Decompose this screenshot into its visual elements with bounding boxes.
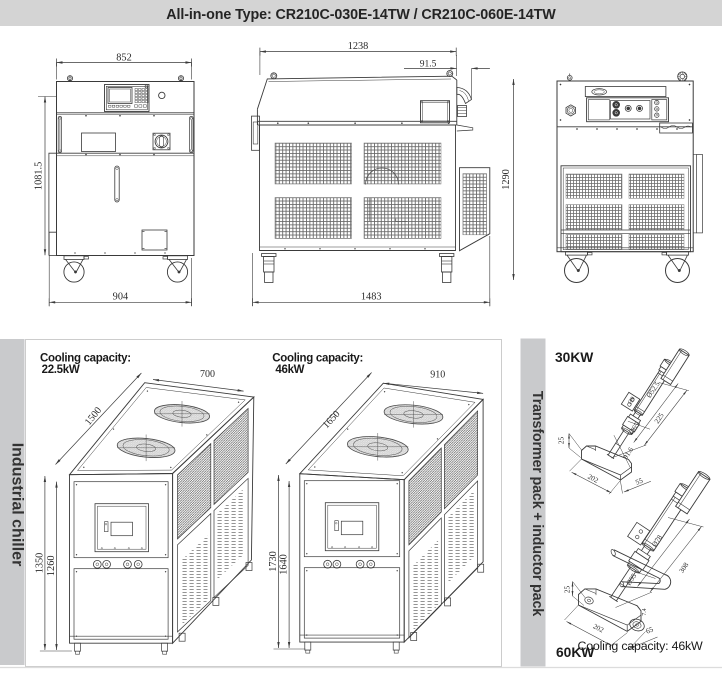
svg-text:Industrial chiller: Industrial chiller xyxy=(9,443,26,567)
svg-text:1081.5: 1081.5 xyxy=(34,162,45,190)
svg-text:22.5kW: 22.5kW xyxy=(42,364,80,376)
svg-text:25: 25 xyxy=(563,586,571,594)
svg-text:1290: 1290 xyxy=(501,169,512,190)
svg-text:Cooling capacity:: Cooling capacity: xyxy=(272,352,363,364)
svg-text:1730: 1730 xyxy=(268,551,279,572)
svg-text:1640: 1640 xyxy=(279,554,290,575)
svg-text:Cooling capacity:: Cooling capacity: xyxy=(40,352,131,364)
svg-text:904: 904 xyxy=(113,292,128,303)
svg-text:30KW: 30KW xyxy=(555,350,594,365)
svg-text:7.4: 7.4 xyxy=(642,608,648,615)
svg-text:91.5: 91.5 xyxy=(420,60,437,70)
svg-text:25: 25 xyxy=(558,437,566,445)
svg-text:All-in-one Type: CR210C-030E-1: All-in-one Type: CR210C-030E-14TW / CR21… xyxy=(166,7,556,23)
svg-text:852: 852 xyxy=(116,53,131,64)
svg-text:46kW: 46kW xyxy=(275,364,304,376)
svg-text:1350: 1350 xyxy=(34,553,45,574)
svg-text:Transformer pack + inductor pa: Transformer pack + inductor pack xyxy=(529,391,545,617)
svg-text:1238: 1238 xyxy=(348,41,369,52)
svg-text:910: 910 xyxy=(430,370,445,381)
svg-text:Cooling capacity: 46kW: Cooling capacity: 46kW xyxy=(577,639,703,653)
svg-text:700: 700 xyxy=(200,369,215,380)
svg-text:1483: 1483 xyxy=(361,292,382,303)
svg-text:1260: 1260 xyxy=(46,556,57,577)
